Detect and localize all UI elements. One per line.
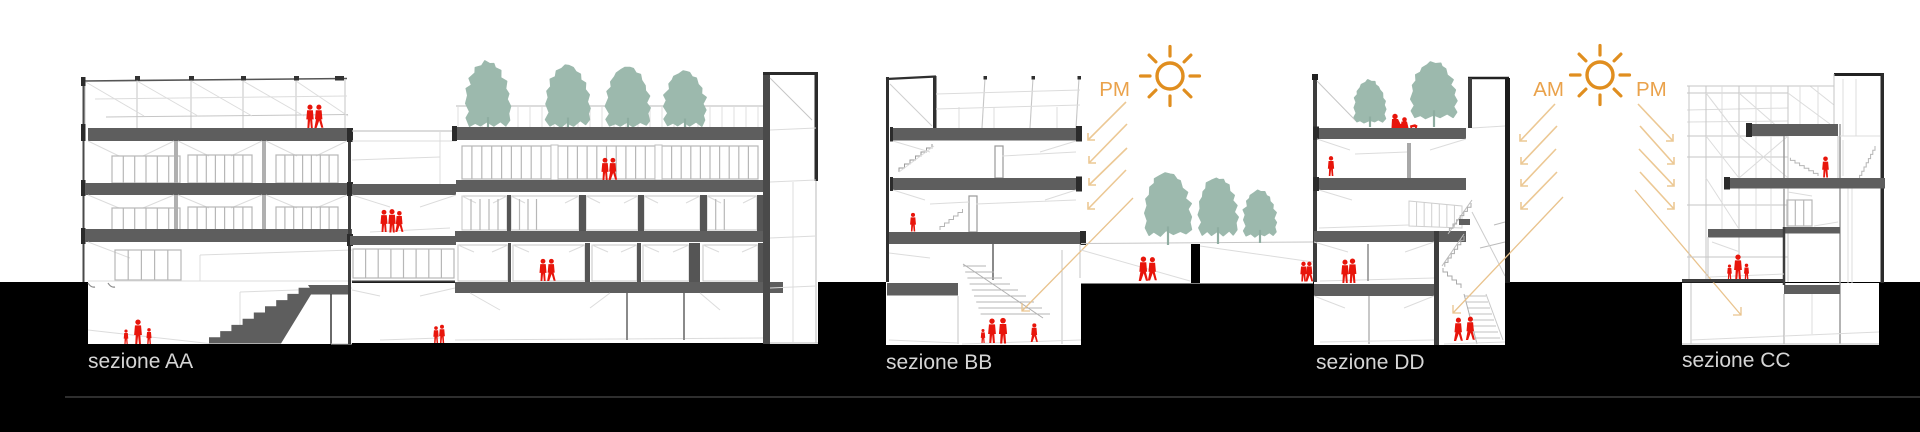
svg-text:PM: PM xyxy=(1636,78,1667,101)
svg-text:sezione AA: sezione AA xyxy=(88,350,193,373)
svg-text:sezione DD: sezione DD xyxy=(1316,351,1425,374)
svg-text:sezione BB: sezione BB xyxy=(886,351,992,374)
svg-text:AM: AM xyxy=(1533,78,1564,101)
svg-text:PM: PM xyxy=(1099,78,1130,101)
svg-text:sezione CC: sezione CC xyxy=(1682,349,1791,372)
